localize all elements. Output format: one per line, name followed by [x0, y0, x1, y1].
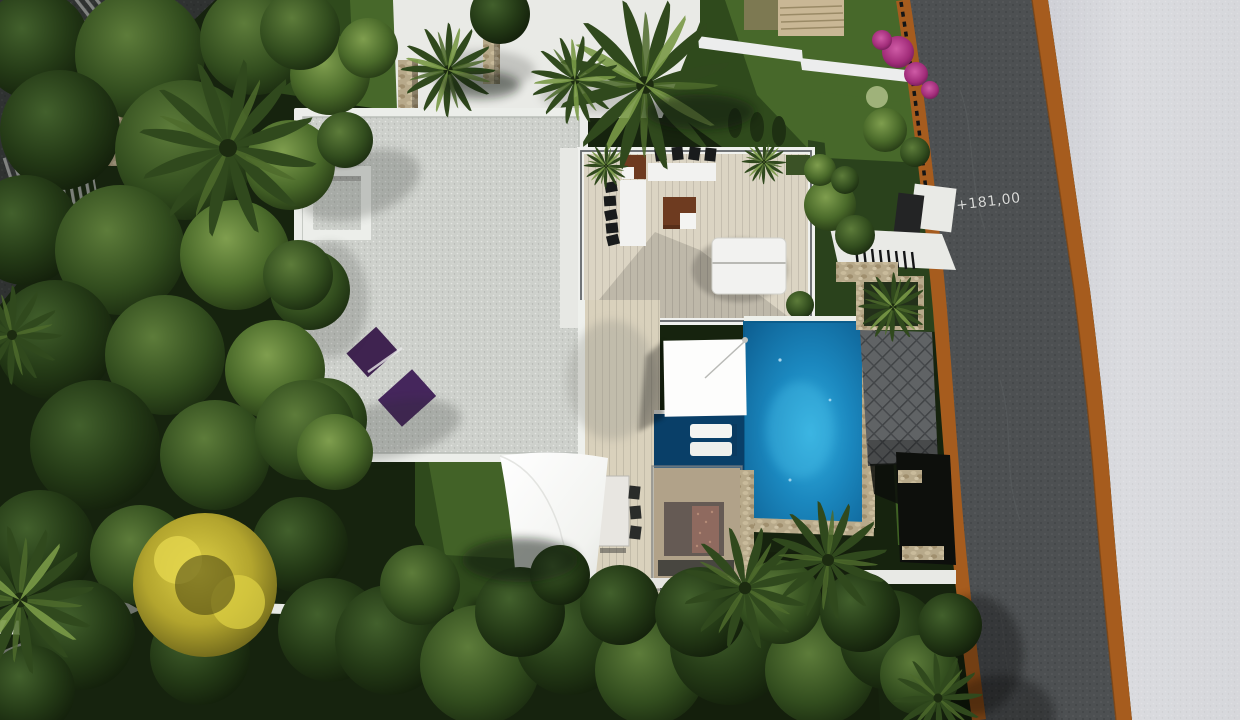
terrace-daybed: [692, 238, 788, 302]
aerial-site-render: +181,00: [0, 0, 1240, 720]
terrace-long-table: [604, 180, 646, 246]
terrace-coffee-table: [663, 197, 696, 229]
yellow-tree: [133, 513, 277, 657]
site-plan-canvas: [0, 0, 1240, 720]
side-path: [560, 148, 578, 328]
